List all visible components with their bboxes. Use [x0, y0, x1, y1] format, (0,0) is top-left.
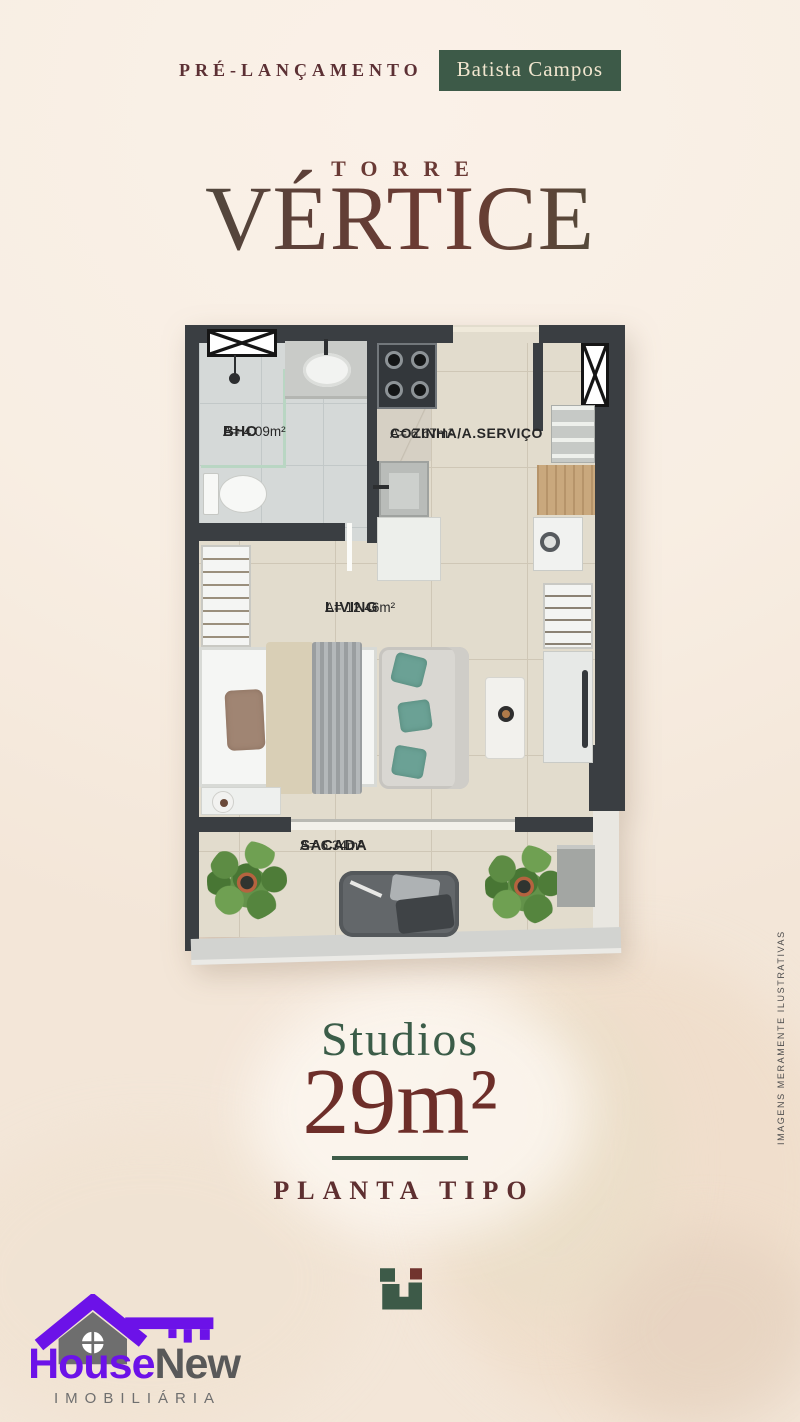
- wall-protrusion: [589, 745, 625, 811]
- faucet-icon: [373, 485, 389, 489]
- daybed-cushion: [395, 894, 455, 935]
- shower-glass: [201, 465, 286, 468]
- bed: [199, 647, 377, 787]
- sofa-pillow: [397, 699, 433, 733]
- agency-logo: HouseNew IMOBILIÁRIA: [6, 1292, 256, 1420]
- bed-throw: [312, 642, 362, 794]
- bathroom-door: [347, 523, 352, 571]
- agency-name-primary: House: [28, 1340, 154, 1388]
- floor-plan: BHO A= 4.09m² COZINHA/A.SERVIÇO A= 6.67m…: [185, 325, 625, 975]
- toilet: [203, 473, 219, 515]
- toilet: [219, 475, 267, 513]
- agency-subtitle: IMOBILIÁRIA: [14, 1390, 254, 1407]
- kitchen-cabinet: [377, 517, 441, 581]
- logo-stairs-shape: [382, 1283, 422, 1310]
- daybed-detail: [350, 880, 383, 897]
- pre-launch-label: PRÉ-LANÇAMENTO: [179, 60, 423, 81]
- wall-bathroom-bottom: [199, 523, 345, 541]
- logo-square-green: [380, 1268, 395, 1282]
- cabinet-handle: [582, 670, 588, 748]
- key-tooth: [168, 1329, 176, 1338]
- plant: [485, 845, 563, 925]
- stove-burner-icon: [385, 381, 403, 399]
- kitchen-sink-basin: [389, 473, 419, 509]
- table-decor: [498, 706, 514, 722]
- plant: [207, 841, 287, 921]
- shower-head-icon: [234, 355, 236, 375]
- washer-door-icon: [540, 532, 560, 552]
- agency-name: HouseNew: [14, 1340, 254, 1388]
- sofa-pillow: [390, 652, 428, 689]
- faucet-icon: [324, 339, 328, 355]
- divider-line: [332, 1156, 468, 1160]
- sliding-door: [291, 819, 515, 830]
- balcony-daybed: [339, 871, 459, 937]
- decor-vase: [212, 791, 234, 813]
- nightstand: [201, 787, 281, 815]
- window-icon: [207, 329, 277, 357]
- laundry-cabinet: [551, 405, 595, 463]
- header: PRÉ-LANÇAMENTO Batista Campos: [0, 50, 800, 91]
- tower-name-logo: VÉRTICE: [0, 168, 800, 268]
- neighborhood-badge: Batista Campos: [439, 50, 621, 91]
- room-area: A= 12.46m²: [325, 600, 395, 615]
- room-area: A= 6.67m²: [390, 426, 453, 441]
- sofa-pillow: [391, 744, 428, 779]
- wall-left: [185, 325, 199, 951]
- coffee-table: [485, 677, 525, 759]
- unit-area-heading: 29m²: [0, 1050, 800, 1154]
- wood-counter: [537, 465, 595, 515]
- decor-vase-center: [220, 799, 228, 807]
- key-shaft: [125, 1317, 213, 1329]
- wall-balcony-left: [199, 817, 291, 832]
- room-area: A= 4.09m²: [223, 424, 286, 439]
- wardrobe: [201, 545, 251, 647]
- logo-square-maroon: [410, 1268, 422, 1279]
- stove-burner-icon: [411, 381, 429, 399]
- tall-cabinet: [543, 651, 593, 763]
- balcony-side-wall: [593, 811, 619, 937]
- wall-entry-stub: [533, 343, 543, 431]
- plan-type-label: PLANTA TIPO: [0, 1176, 800, 1206]
- stove-burner-icon: [411, 351, 429, 369]
- kitchen-sink: [379, 461, 429, 517]
- window-x-glyph: [210, 332, 274, 354]
- developer-logo-icon: [371, 1262, 431, 1324]
- stove-burner-icon: [385, 351, 403, 369]
- room-area: A= 6.34m²: [300, 838, 363, 853]
- washing-machine: [533, 517, 583, 571]
- bathroom-sink: [303, 353, 351, 387]
- entry-sill: [453, 327, 539, 332]
- stove: [377, 343, 437, 409]
- window-x-glyph: [584, 346, 606, 404]
- bed-pillow: [224, 689, 265, 751]
- wall-balcony-right: [515, 817, 595, 832]
- shower-head-icon: [229, 373, 240, 384]
- balcony-cabinet: [557, 845, 595, 907]
- flyer-canvas: PRÉ-LANÇAMENTO Batista Campos TORRE VÉRT…: [0, 0, 800, 1422]
- disclaimer-text: IMAGENS MERAMENTE ILUSTRATIVAS: [776, 975, 786, 1145]
- sofa: [379, 647, 469, 789]
- bed-blanket: [266, 642, 314, 794]
- closet-rail: [543, 583, 593, 649]
- agency-name-secondary: New: [155, 1340, 240, 1388]
- window-icon: [581, 343, 609, 407]
- key-tooth: [200, 1329, 210, 1340]
